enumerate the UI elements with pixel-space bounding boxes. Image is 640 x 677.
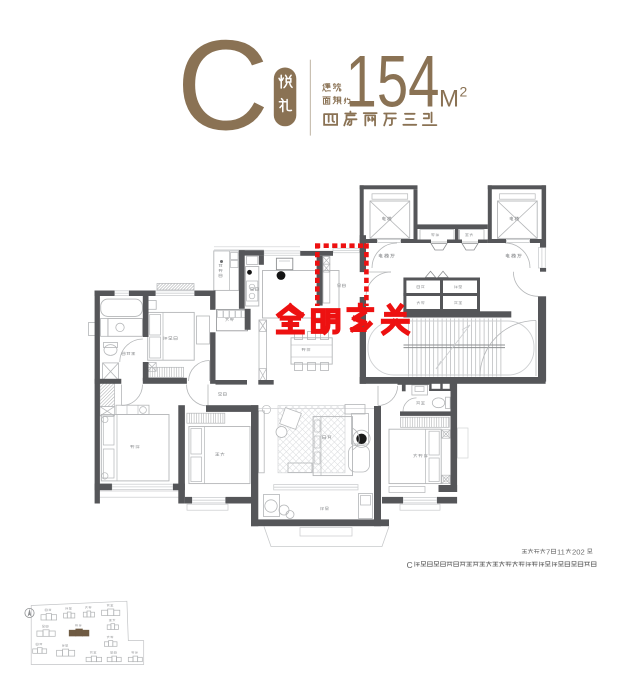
- svg-text:202: 202: [572, 548, 585, 557]
- svg-text:C: C: [407, 560, 413, 570]
- svg-text:C: C: [177, 15, 269, 158]
- svg-text:M: M: [439, 86, 459, 113]
- svg-text:2: 2: [460, 84, 468, 100]
- svg-text:7: 7: [546, 548, 550, 557]
- svg-text:154: 154: [346, 42, 440, 123]
- svg-text:11: 11: [557, 548, 565, 557]
